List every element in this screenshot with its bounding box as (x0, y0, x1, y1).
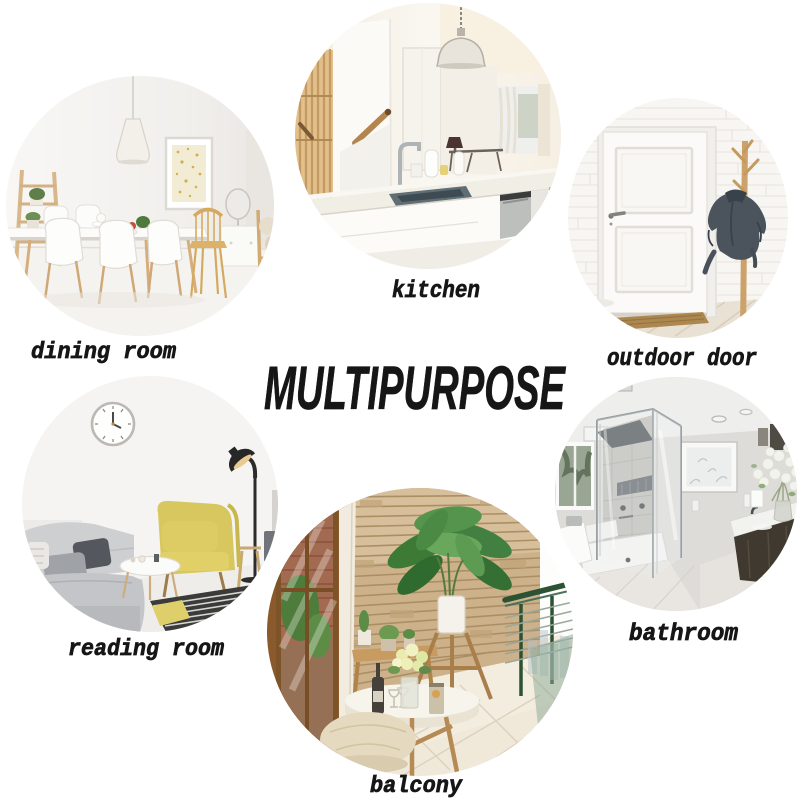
svg-text:bathroom: bathroom (629, 621, 739, 648)
svg-text:balcony: balcony (370, 773, 463, 799)
svg-text:outdoor door: outdoor door (607, 346, 757, 373)
svg-text:reading room: reading room (68, 636, 224, 662)
svg-text:MULTIPURPOSE: MULTIPURPOSE (264, 354, 566, 422)
svg-text:kitchen: kitchen (392, 278, 480, 305)
svg-text:dining room: dining room (31, 339, 176, 365)
